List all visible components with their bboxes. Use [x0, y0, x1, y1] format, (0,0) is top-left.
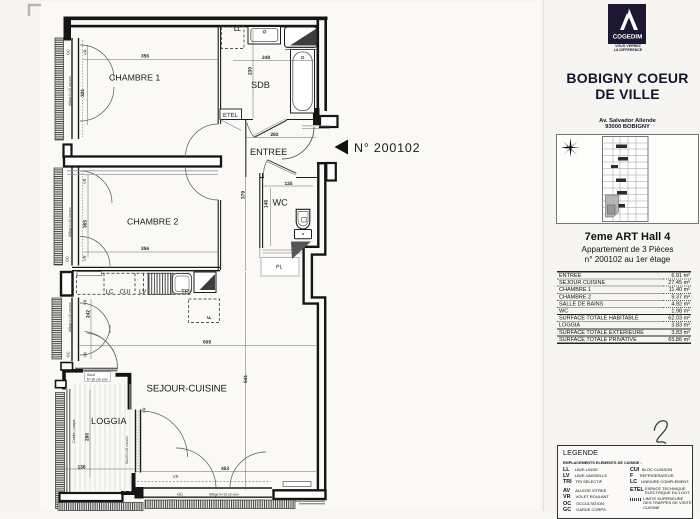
svg-text:321: 321	[80, 89, 86, 97]
svg-text:LL: LL	[234, 27, 241, 33]
svg-text:LOGGIA: LOGGIA	[91, 416, 127, 426]
svg-text:N° 200102: N° 200102	[354, 141, 420, 155]
svg-text:248: 248	[262, 55, 270, 61]
svg-text:379: 379	[241, 191, 247, 199]
svg-text:CHAMBRE 2: CHAMBRE 2	[127, 217, 178, 227]
svg-text:Corde—corps: Corde—corps	[72, 419, 76, 443]
svg-text:365: 365	[83, 220, 89, 228]
svg-text:541: 541	[243, 375, 249, 383]
svg-text:h=15 cm env: h=15 cm env	[87, 377, 108, 381]
svg-text:VR: VR	[142, 407, 147, 413]
svg-text:VR: VR	[82, 178, 87, 184]
svg-text:ETEL: ETEL	[223, 112, 239, 119]
svg-text:148: 148	[264, 200, 270, 208]
svg-text:SEJOUR-CUISINE: SEJOUR-CUISINE	[147, 384, 228, 395]
svg-text:453: 453	[221, 466, 229, 472]
svg-text:356: 356	[141, 246, 149, 252]
svg-text:282: 282	[271, 132, 279, 138]
svg-text:GC: GC	[65, 256, 70, 262]
svg-text:242: 242	[86, 310, 92, 318]
svg-text:VR: VR	[83, 49, 88, 55]
svg-text:135: 135	[285, 181, 293, 187]
svg-text:286: 286	[85, 433, 91, 441]
svg-text:Seuil h=15 cm env: Seuil h=15 cm env	[125, 436, 129, 464]
svg-text:VR: VR	[82, 255, 87, 261]
svg-text:VR: VR	[83, 352, 88, 358]
svg-text:CHAMBRE 1: CHAMBRE 1	[109, 73, 160, 83]
svg-text:GC: GC	[66, 49, 71, 55]
svg-text:PL: PL	[276, 265, 283, 271]
svg-text:GC: GC	[177, 491, 183, 496]
svg-text:CUI: CUI	[120, 289, 131, 296]
svg-text:VR: VR	[173, 474, 179, 479]
svg-text:136: 136	[78, 464, 86, 470]
svg-text:LC: LC	[106, 289, 114, 296]
svg-text:LV: LV	[139, 289, 147, 296]
svg-text:Allège h=15 cm env: Allège h=15 cm env	[68, 207, 72, 237]
svg-text:GC: GC	[66, 351, 71, 357]
svg-text:609: 609	[203, 340, 211, 346]
svg-text:WC: WC	[273, 198, 289, 208]
svg-text:Allège h=15 cm env: Allège h=15 cm env	[209, 492, 239, 496]
svg-text:Allège h=15 cm env: Allège h=15 cm env	[68, 76, 72, 106]
svg-text:F: F	[207, 316, 213, 319]
svg-text:TRI: TRI	[181, 289, 191, 296]
svg-text:230: 230	[248, 67, 254, 75]
svg-text:356: 356	[141, 54, 149, 60]
svg-text:ENTREE: ENTREE	[250, 147, 287, 157]
svg-text:Allège h=15 cm env: Allège h=15 cm env	[68, 302, 72, 332]
svg-text:VR: VR	[83, 299, 88, 305]
svg-text:COGEDIM: COGEDIM	[613, 34, 643, 41]
svg-text:SDB: SDB	[251, 80, 270, 90]
